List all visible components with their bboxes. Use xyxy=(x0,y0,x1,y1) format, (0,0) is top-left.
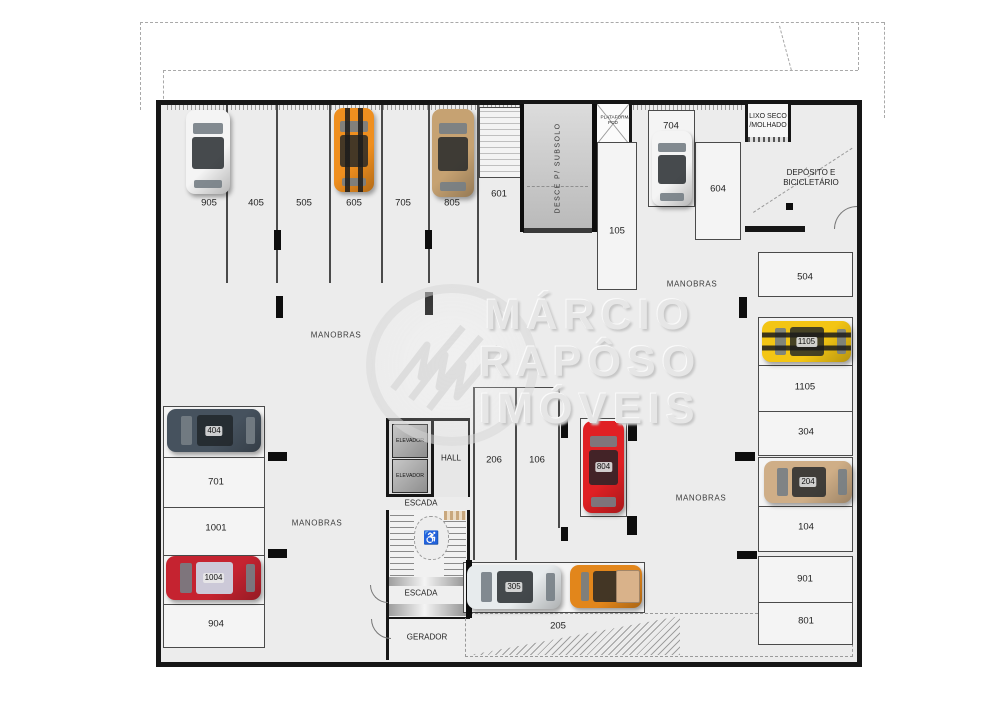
structural-column xyxy=(561,527,568,541)
spot-divider xyxy=(164,457,264,458)
parking-divider-line xyxy=(381,105,383,283)
spot-divider xyxy=(759,506,852,507)
spot-divider xyxy=(164,507,264,508)
car-spot-label: 1105 xyxy=(796,337,817,347)
floor-label-701: 701 xyxy=(208,477,224,488)
stairs-main: ♿ xyxy=(386,510,470,577)
car-windshield xyxy=(658,143,685,152)
structural-column xyxy=(786,203,793,210)
floor-label-hall: HALL xyxy=(441,454,461,463)
car-rear-window xyxy=(546,573,555,600)
ramp-hatch-triangle xyxy=(470,616,680,655)
projection-line xyxy=(163,70,164,104)
floor-label-905: 905 xyxy=(201,198,217,209)
parking-divider-line xyxy=(515,387,517,560)
room-lixo: LIXO SECO/MOLHADO xyxy=(745,104,791,142)
car-roof xyxy=(192,137,224,169)
structural-column xyxy=(735,452,755,461)
car-spot-label: 204 xyxy=(799,477,816,487)
car-404: 404 xyxy=(167,409,261,452)
structural-column xyxy=(425,292,433,315)
spot-divider xyxy=(759,602,852,603)
spot-105 xyxy=(597,142,637,290)
car-305: 305 xyxy=(467,565,561,609)
parking-divider-line xyxy=(473,387,475,560)
elevator-shaft: ELEVADOR ELEVADOR xyxy=(386,418,434,497)
car-roof xyxy=(340,135,369,167)
floor-label-901: 901 xyxy=(797,574,813,585)
car-spot-label: 404 xyxy=(205,426,222,436)
car-1004: 1004 xyxy=(166,556,261,600)
elevator-2: ELEVADOR xyxy=(392,459,428,493)
floor-label-206: 206 xyxy=(486,455,502,466)
car-rear-window xyxy=(246,564,256,591)
parking-divider-line xyxy=(276,105,278,283)
stair-tread-bar xyxy=(389,604,468,616)
car-windshield xyxy=(439,123,468,134)
projection-line xyxy=(140,22,884,23)
truck-bed xyxy=(616,570,640,603)
car-roof xyxy=(438,137,468,170)
car-rear-window xyxy=(342,178,367,186)
car-spot-label: 305 xyxy=(505,582,522,592)
structural-column xyxy=(520,104,524,232)
floor-label-manobras: MANOBRAS xyxy=(667,280,718,289)
wall-segment xyxy=(745,226,805,232)
floor-label-105: 105 xyxy=(609,226,625,237)
car-windshield xyxy=(581,572,590,601)
car-windshield xyxy=(193,123,223,133)
floor-label-manobras: MANOBRAS xyxy=(292,519,343,528)
floor-label-604: 604 xyxy=(710,184,726,195)
floor-label-manobras: MANOBRAS xyxy=(676,494,727,503)
floor-label-manobras: MANOBRAS xyxy=(311,331,362,340)
stair-landing-strip xyxy=(444,511,466,520)
car-rear-window xyxy=(660,193,685,201)
car-605 xyxy=(334,108,374,192)
elevator-1-label: ELEVADOR xyxy=(396,438,424,444)
car-windshield xyxy=(181,416,192,445)
room-plataforma-pcd: PLATAFORMAPCD xyxy=(594,104,632,144)
car-704 xyxy=(652,131,692,206)
pcd-label: PLATAFORMAPCD xyxy=(601,116,626,127)
floor-label-505: 505 xyxy=(296,198,312,209)
floor-label-205: 205 xyxy=(550,621,566,632)
floor-label-1105: 1105 xyxy=(795,382,815,393)
car-rear-window xyxy=(838,469,847,495)
floor-label-escada: ESCADA xyxy=(405,499,438,508)
car-rear-window xyxy=(246,417,255,444)
structural-column xyxy=(627,516,637,535)
structural-column xyxy=(561,417,568,438)
floor-label-104: 104 xyxy=(798,522,814,533)
car-windshield xyxy=(775,328,786,356)
floor-label-605: 605 xyxy=(346,198,362,209)
floor-label-escada: ESCADA xyxy=(405,589,438,598)
structural-column xyxy=(739,297,747,318)
car-spot-label: 1004 xyxy=(203,573,225,583)
car-windshield xyxy=(481,572,492,602)
elevator-2-label: ELEVADOR xyxy=(396,473,424,479)
elevator-1: ELEVADOR xyxy=(392,424,428,458)
car-204: 204 xyxy=(764,461,852,503)
floor-label-805: 805 xyxy=(444,198,460,209)
car-spot-label: 804 xyxy=(595,462,612,472)
lixo-label: LIXO SECO/MOLHADO xyxy=(748,112,788,130)
structural-column xyxy=(737,551,757,559)
projection-line xyxy=(779,26,792,71)
structural-column xyxy=(592,104,597,232)
floor-label-904: 904 xyxy=(208,619,224,630)
car-805 xyxy=(432,109,474,197)
floor-label-801: 801 xyxy=(798,616,814,627)
car-rear-window xyxy=(440,182,466,191)
projection-line xyxy=(884,22,885,118)
floor-label-601: 601 xyxy=(491,189,507,200)
floor-label-gerador: GERADOR xyxy=(407,633,447,642)
car-windshield xyxy=(590,436,618,447)
stair-treads xyxy=(390,512,414,576)
ramp-label: DESCE P/ SUBSOLO xyxy=(554,123,561,214)
car-205 xyxy=(570,565,642,608)
projection-line xyxy=(140,22,141,110)
floor-label-705: 705 xyxy=(395,198,411,209)
structural-column xyxy=(628,422,637,441)
car-roof xyxy=(658,155,687,184)
spots-right-group-c xyxy=(758,556,853,645)
car-windshield xyxy=(340,121,367,131)
floor-label-1001: 1001 xyxy=(205,523,226,534)
floor-label-304: 304 xyxy=(798,427,814,438)
spot-divider xyxy=(759,411,852,412)
wheelchair-icon: ♿ xyxy=(423,530,439,545)
floor-label-504: 504 xyxy=(797,272,813,283)
floor-label-704: 704 xyxy=(663,121,679,132)
car-windshield xyxy=(180,563,191,593)
structural-column xyxy=(268,452,287,461)
floor-plan-canvas: DESCE P/ SUBSOLO PLATAFORMAPCD LIXO SECO… xyxy=(0,0,1000,707)
storage-601 xyxy=(479,107,521,178)
structural-column xyxy=(274,230,281,250)
car-rear-window xyxy=(194,180,221,188)
floor-label-405: 405 xyxy=(248,198,264,209)
spot-divider xyxy=(759,365,852,366)
structural-column xyxy=(268,549,287,558)
car-rear-window xyxy=(591,497,616,506)
deposito-label: DEPÓSITO EBICICLETÁRIO xyxy=(767,168,855,188)
car-windshield xyxy=(777,468,788,497)
ramp-desce-subsolo: DESCE P/ SUBSOLO xyxy=(523,104,592,232)
parking-divider-line xyxy=(428,105,430,283)
parking-boundary-line xyxy=(473,387,559,388)
parking-divider-line xyxy=(329,105,331,283)
projection-line xyxy=(858,22,859,70)
car-1105: 1105 xyxy=(762,321,851,362)
floor-label-106: 106 xyxy=(529,455,545,466)
structural-column xyxy=(276,296,283,318)
car-905 xyxy=(186,110,230,194)
structural-column xyxy=(425,230,432,249)
car-rear-window xyxy=(837,329,846,354)
car-804: 804 xyxy=(583,421,624,513)
ramp-threshold xyxy=(523,228,592,233)
projection-line xyxy=(163,70,858,71)
parking-divider-line xyxy=(558,387,560,528)
stair-tread-bar xyxy=(389,577,468,586)
spot-divider xyxy=(164,604,264,605)
accessible-landing: ♿ xyxy=(414,516,449,560)
